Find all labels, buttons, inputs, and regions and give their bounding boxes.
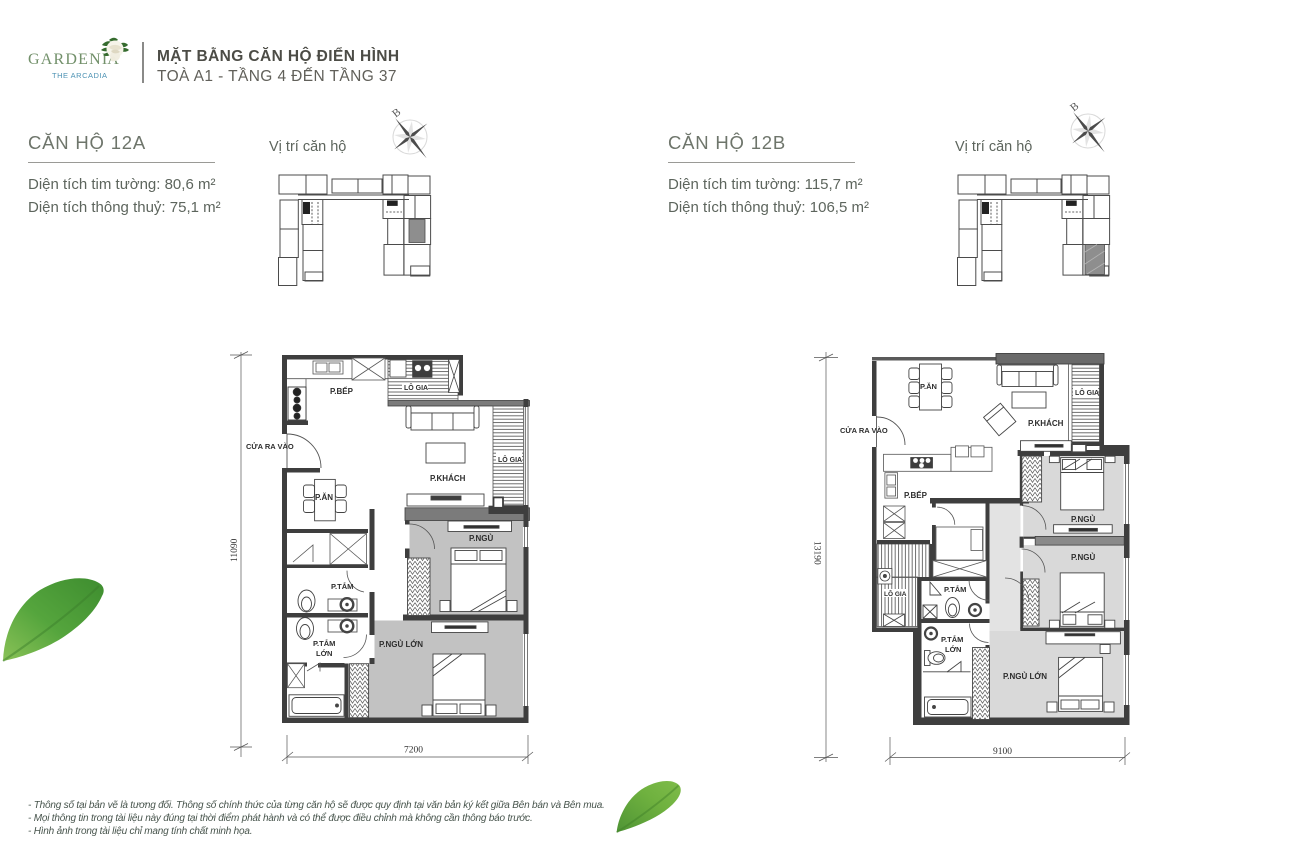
svg-text:P.BẾP: P.BẾP xyxy=(904,490,928,500)
svg-text:LÔ GIA: LÔ GIA xyxy=(1075,388,1099,397)
svg-text:P.BẾP: P.BẾP xyxy=(330,386,354,396)
svg-text:CỬA RA VÀO: CỬA RA VÀO xyxy=(840,426,888,435)
svg-text:13190: 13190 xyxy=(812,541,822,565)
svg-text:7200: 7200 xyxy=(404,746,423,756)
svg-text:P.NGỦ: P.NGỦ xyxy=(1071,553,1096,562)
svg-text:LỚN: LỚN xyxy=(945,645,961,654)
svg-text:LÔ GIA: LÔ GIA xyxy=(404,383,428,392)
svg-text:B: B xyxy=(1068,100,1081,114)
svg-text:P.KHÁCH: P.KHÁCH xyxy=(1028,419,1064,428)
svg-text:CỬA RA VÀO: CỬA RA VÀO xyxy=(246,442,294,451)
svg-text:9100: 9100 xyxy=(993,747,1012,757)
svg-text:LỚN: LỚN xyxy=(316,649,332,658)
svg-text:B: B xyxy=(390,106,403,120)
svg-text:P.TẮM: P.TẮM xyxy=(944,585,966,594)
svg-text:P.NGỦ: P.NGỦ xyxy=(1071,515,1096,524)
svg-text:P.KHÁCH: P.KHÁCH xyxy=(430,474,466,483)
svg-text:LÔ GIA: LÔ GIA xyxy=(498,455,522,464)
svg-text:11090: 11090 xyxy=(230,538,240,562)
svg-text:P.TẮM: P.TẮM xyxy=(313,639,335,648)
svg-text:P.NGỦ LỚN: P.NGỦ LỚN xyxy=(379,640,423,649)
svg-text:P.NGỦ: P.NGỦ xyxy=(469,534,494,543)
svg-text:P.TẮM: P.TẮM xyxy=(941,635,963,644)
svg-text:P.ĂN: P.ĂN xyxy=(920,382,937,391)
svg-text:P.ĂN: P.ĂN xyxy=(315,493,333,502)
svg-text:P.TẮM: P.TẮM xyxy=(331,582,353,591)
svg-text:LÔ GIA: LÔ GIA xyxy=(884,589,907,598)
svg-text:P.NGỦ LỚN: P.NGỦ LỚN xyxy=(1003,672,1047,681)
